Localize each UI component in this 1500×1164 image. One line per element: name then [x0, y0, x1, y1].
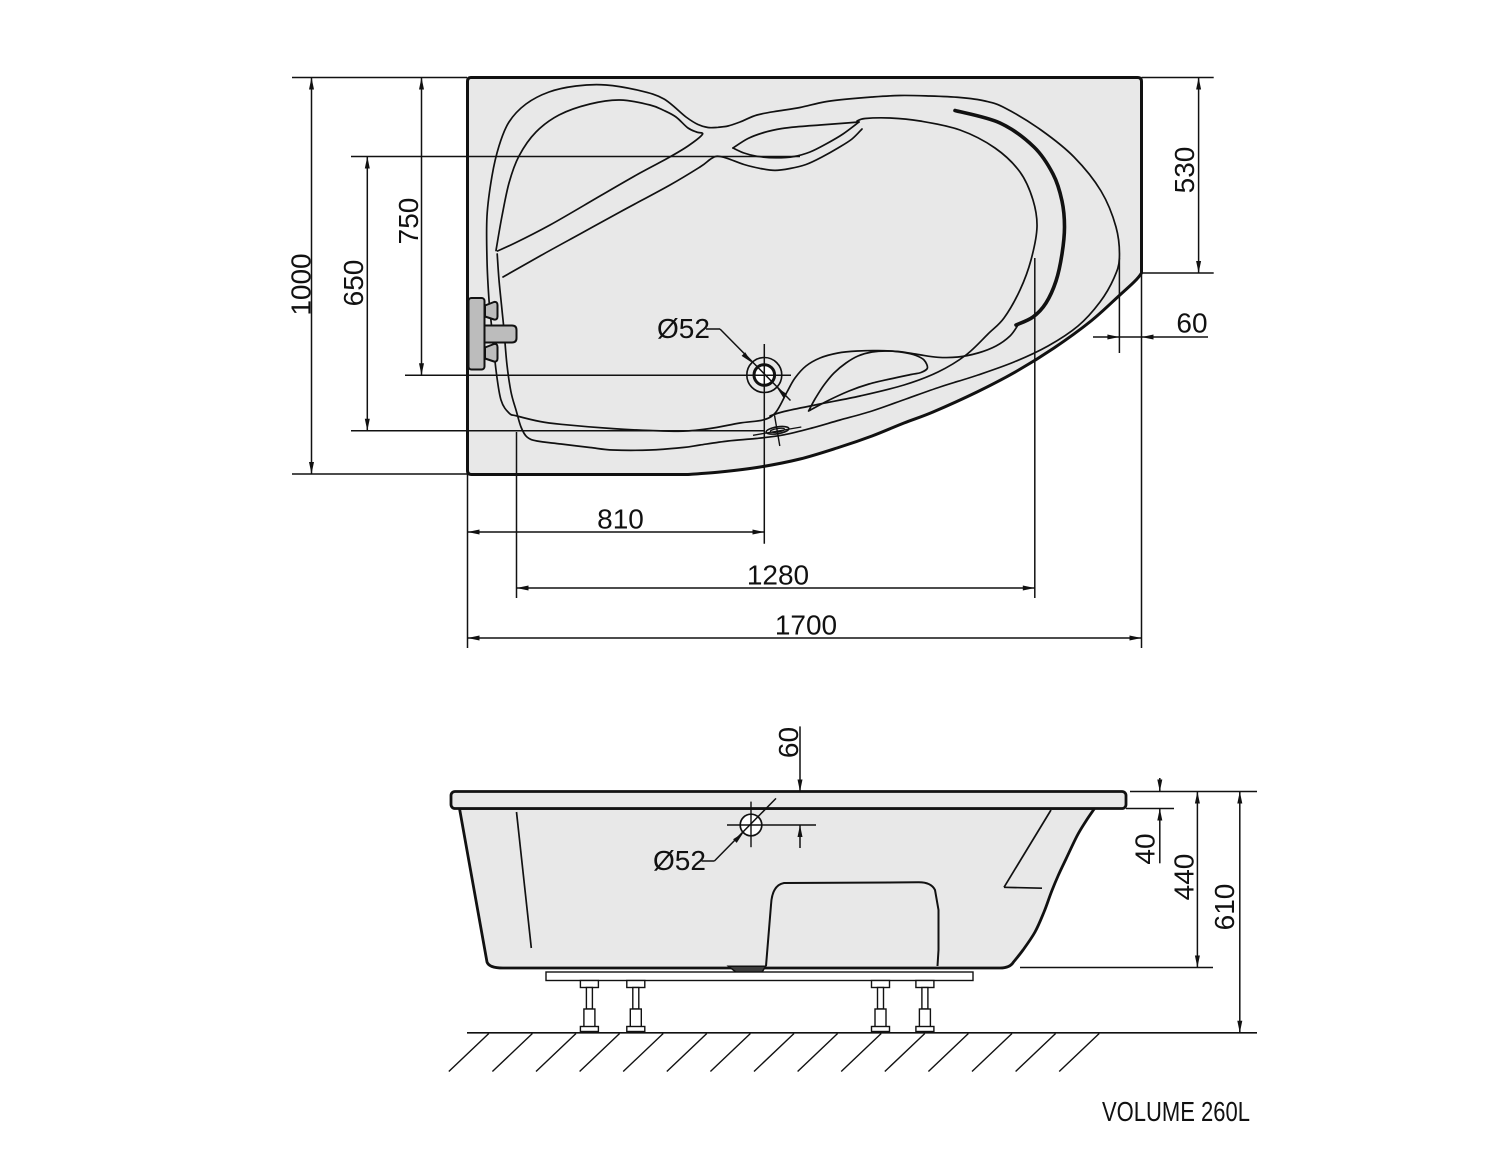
- svg-text:610: 610: [1209, 884, 1240, 931]
- svg-text:VOLUME 260L: VOLUME 260L: [1102, 1096, 1250, 1127]
- svg-text:Ø52: Ø52: [657, 313, 710, 344]
- svg-text:40: 40: [1130, 833, 1161, 864]
- svg-text:1000: 1000: [286, 253, 317, 315]
- svg-text:Ø52: Ø52: [653, 845, 706, 876]
- svg-text:810: 810: [597, 504, 644, 535]
- svg-text:60: 60: [773, 727, 804, 758]
- svg-text:1700: 1700: [775, 610, 837, 641]
- svg-text:750: 750: [393, 198, 424, 245]
- svg-text:530: 530: [1169, 147, 1200, 194]
- svg-text:650: 650: [338, 260, 369, 307]
- svg-text:440: 440: [1169, 854, 1200, 901]
- svg-text:60: 60: [1176, 308, 1207, 339]
- svg-text:1280: 1280: [747, 560, 809, 591]
